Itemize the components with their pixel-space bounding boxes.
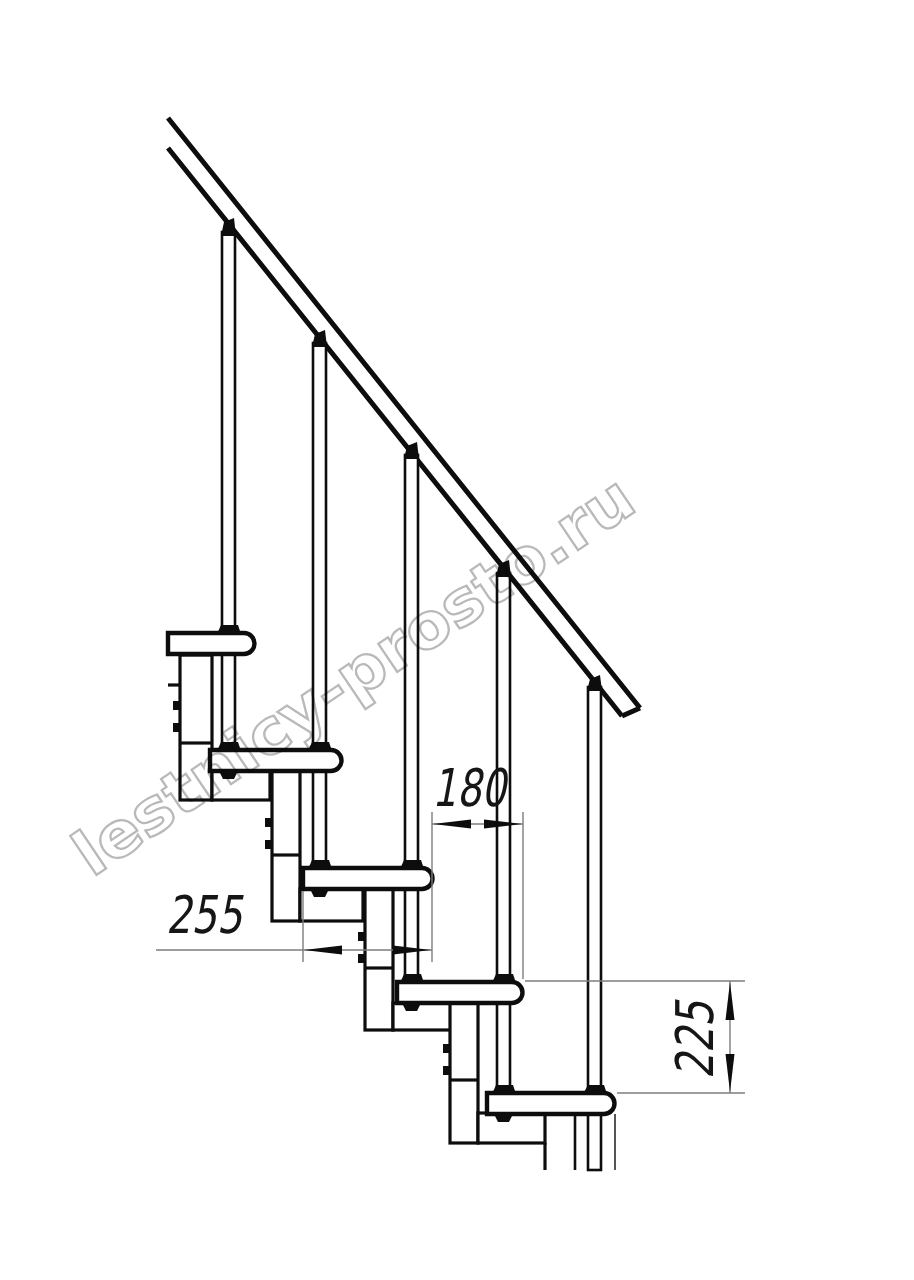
arrowhead-left <box>433 820 471 829</box>
staircase-drawing-page: 255 180 225 lestnicy-prosto.ru <box>0 0 914 1280</box>
module-4 <box>443 1003 545 1170</box>
tread-1 <box>168 633 255 654</box>
tread-wedge <box>308 860 332 869</box>
baluster-3 <box>405 455 418 1010</box>
tread-wedge <box>400 860 424 869</box>
arrowhead-left <box>304 946 342 955</box>
tread-wedge <box>583 1085 607 1094</box>
baluster-4 <box>497 573 510 1121</box>
tread-5 <box>487 1093 615 1114</box>
arrowhead-up <box>726 982 735 1020</box>
tread-wedge <box>492 974 516 983</box>
tread-3 <box>303 868 433 889</box>
arrowhead-down <box>726 1054 735 1092</box>
tread-wedge <box>492 1085 516 1094</box>
watermark-text: lestnicy-prosto.ru <box>60 461 648 891</box>
staircase-drawing: 255 180 225 lestnicy-prosto.ru <box>0 0 914 1280</box>
tread-4 <box>397 982 523 1003</box>
dim-label-180: 180 <box>432 758 509 818</box>
baluster-1 <box>222 232 235 778</box>
baluster-2 <box>313 343 326 896</box>
tread-wedge <box>217 625 241 634</box>
dim-label-255: 255 <box>166 885 244 945</box>
dimension-225: 225 <box>525 981 745 1093</box>
dim-label-225: 225 <box>665 999 725 1079</box>
tread-wedge <box>400 974 424 983</box>
